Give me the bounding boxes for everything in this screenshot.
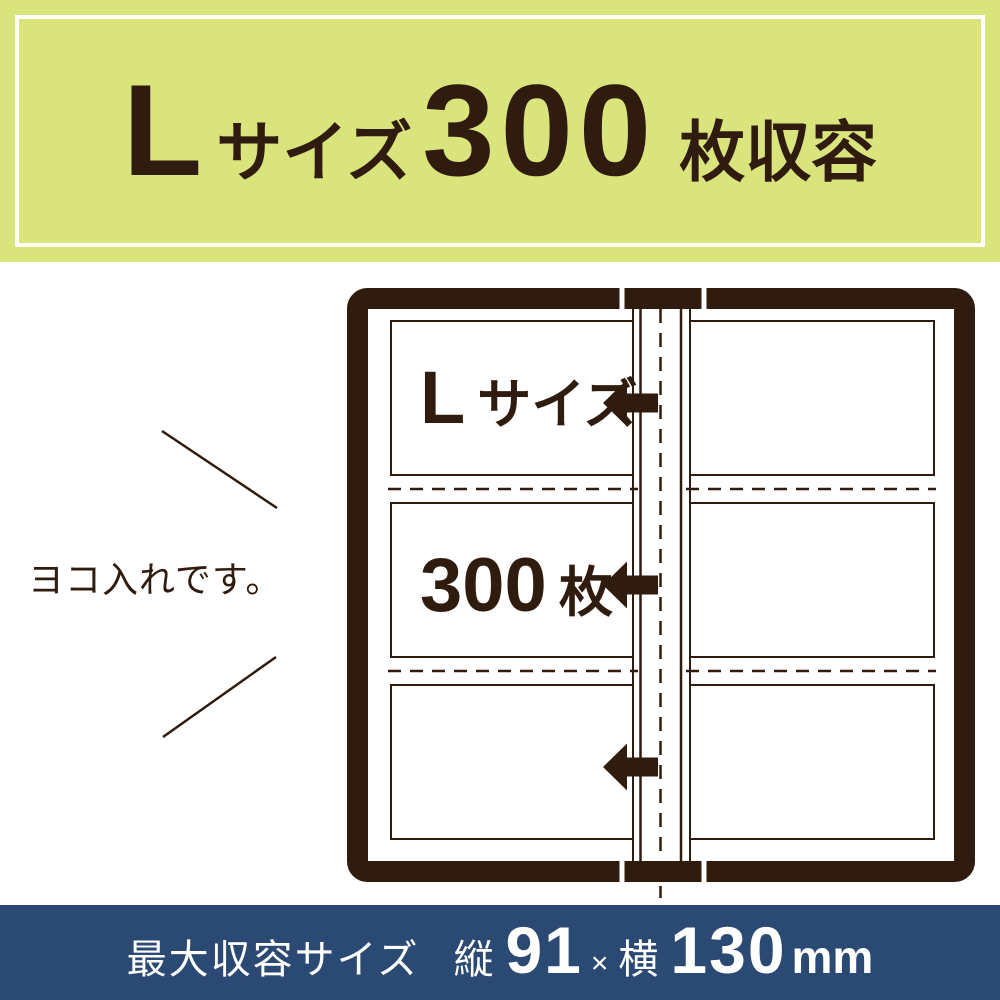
slot-size-label: サイズ <box>477 375 637 435</box>
annotation-line-upper <box>162 431 277 508</box>
slot-count-unit: 枚 <box>559 563 613 623</box>
slot-label-count: 300枚 <box>420 548 613 624</box>
slot-count: 300 <box>420 543 547 628</box>
max-size-label: 最大収容サイズ <box>127 940 420 980</box>
height-label: 縦 <box>453 940 493 980</box>
photo-slot <box>690 685 934 839</box>
spine-gap-bottom-left <box>620 859 625 883</box>
spine-gap-bottom-right <box>702 859 707 883</box>
unit-label: mm <box>792 934 874 980</box>
album-diagram <box>0 0 1000 1000</box>
slot-size-letter: L <box>420 356 465 439</box>
product-infographic: L サイズ 300 枚収容 <box>0 0 1000 1000</box>
photo-slot <box>690 503 934 657</box>
orientation-note: ヨコ入れです。 <box>28 560 282 600</box>
photo-slot <box>391 685 633 839</box>
spine-gap-top-left <box>620 287 625 311</box>
width-value: 130 <box>670 917 786 983</box>
multiply-sign: × <box>591 949 609 979</box>
max-size-spec: 最大収容サイズ 縦 91 × 横 130 mm <box>0 917 1000 983</box>
photo-slot <box>690 321 934 475</box>
width-label: 横 <box>618 940 658 980</box>
slot-label-size: Lサイズ <box>420 361 638 435</box>
bottom-banner: 最大収容サイズ 縦 91 × 横 130 mm <box>0 905 1000 1000</box>
spine-gap-top-right <box>702 287 707 311</box>
annotation-line-lower <box>163 657 276 737</box>
height-value: 91 <box>505 917 582 983</box>
